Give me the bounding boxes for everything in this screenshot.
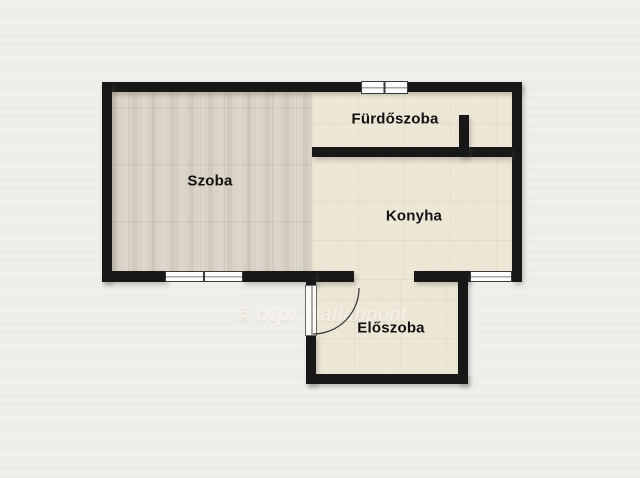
wall-right	[512, 82, 522, 282]
watermark-copyright-icon: ©	[237, 305, 252, 326]
kitchen-window	[470, 271, 512, 282]
wall-left	[102, 82, 112, 282]
room-label-furdoszoba: Fürdőszoba	[352, 111, 439, 128]
wall-hallway-bottom	[306, 374, 468, 384]
floorplan-canvas: ©otpingatlanpont Szoba Fürdőszoba Konyha…	[0, 0, 640, 478]
room-label-konyha: Konyha	[386, 208, 442, 225]
wall-bathroom-stub	[459, 115, 469, 157]
wall-top	[102, 82, 522, 92]
wall-hallway-right	[458, 271, 468, 384]
wall-bottom-left-segment	[102, 271, 166, 282]
room-label-szoba: Szoba	[187, 173, 232, 190]
wall-bathroom-divider	[312, 147, 512, 157]
room-label-eloszoba: Előszoba	[357, 320, 424, 337]
door-swing-arc	[305, 280, 375, 350]
szoba-window	[165, 271, 243, 282]
watermark-brand: otp	[256, 301, 292, 326]
bathroom-window	[361, 81, 408, 94]
